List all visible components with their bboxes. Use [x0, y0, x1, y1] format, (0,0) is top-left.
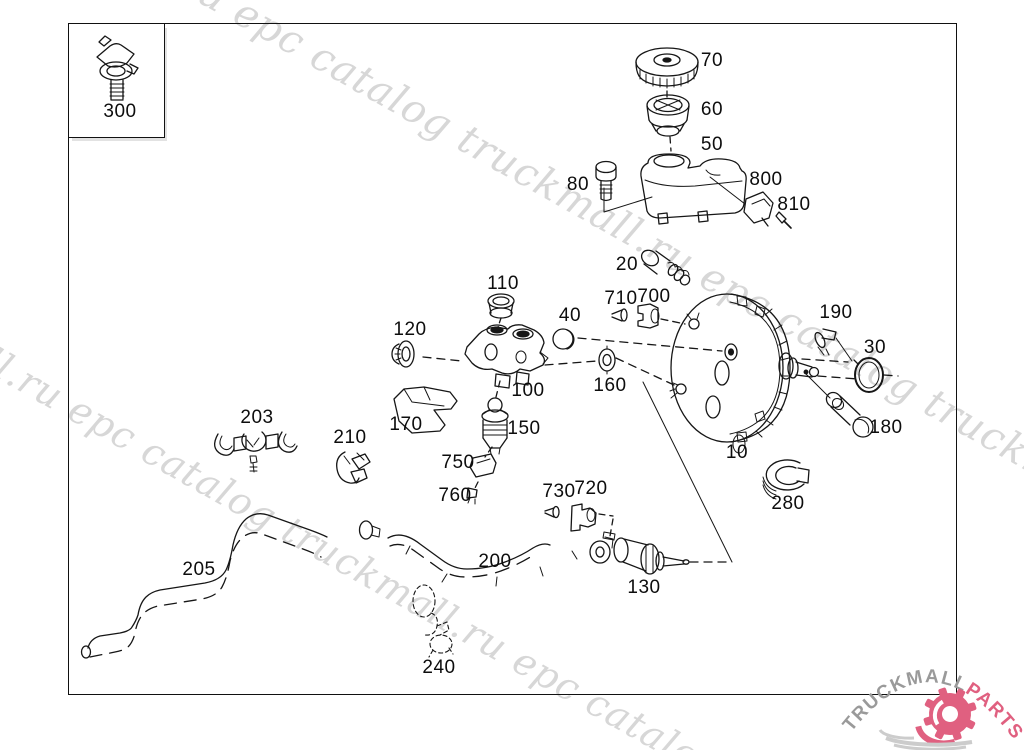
part-label-700: 700 [637, 286, 670, 308]
part-210-drawing [337, 452, 370, 483]
part-180-drawing [806, 374, 873, 437]
truckmall-parts-logo: TRUCKMALLPARTS [828, 642, 1024, 750]
part-120-drawing [392, 341, 414, 367]
part-label-40: 40 [559, 305, 581, 327]
part-label-120: 120 [393, 319, 426, 341]
part-150-drawing [482, 398, 508, 454]
part-label-300: 300 [103, 101, 136, 123]
part-205-drawing [82, 514, 381, 658]
part-label-100: 100 [511, 380, 544, 402]
part-label-810: 810 [777, 194, 810, 216]
part-20-drawing [639, 247, 692, 287]
part-130-drawing [614, 538, 689, 574]
part-label-110: 110 [487, 273, 519, 295]
part-110-drawing [488, 294, 514, 318]
part-60-drawing [647, 95, 689, 136]
part-50-drawing [641, 154, 746, 224]
part-label-710: 710 [604, 288, 637, 310]
hose-200-end-fitting [590, 532, 615, 563]
part-label-730: 730 [542, 481, 575, 503]
part-label-720: 720 [574, 478, 607, 500]
part-710-drawing [612, 309, 627, 321]
part-label-210: 210 [333, 427, 366, 449]
part-203-drawing [215, 432, 297, 472]
part-190-drawing [813, 329, 852, 361]
catalog-page: truckmall.ru epc catalog truckmall.ru ep… [0, 0, 1024, 750]
exploded-parts-drawing [0, 0, 1024, 750]
part-70-drawing [636, 48, 698, 88]
part-label-190: 190 [819, 302, 852, 324]
part-label-160: 160 [593, 375, 626, 397]
part-label-70: 70 [701, 50, 723, 72]
part-10-booster-drawing [670, 294, 819, 453]
part-30-drawing [854, 358, 883, 392]
part-label-280: 280 [771, 493, 804, 515]
part-label-240: 240 [422, 657, 455, 679]
part-720-drawing [571, 504, 596, 531]
part-label-60: 60 [701, 99, 723, 121]
part-300-drawing [97, 36, 138, 100]
part-label-800: 800 [749, 169, 782, 191]
part-label-170: 170 [389, 414, 422, 436]
part-label-30: 30 [864, 337, 886, 359]
part-label-750: 750 [441, 452, 474, 474]
part-label-150: 150 [507, 418, 540, 440]
part-100-drawing [465, 325, 548, 388]
part-label-10: 10 [726, 442, 748, 464]
part-label-50: 50 [701, 134, 723, 156]
part-label-20: 20 [616, 254, 638, 276]
part-40-drawing [553, 329, 574, 349]
part-240-drawing [413, 585, 453, 657]
logo-text-pink: PARTS [962, 679, 1024, 744]
part-label-80: 80 [567, 174, 589, 196]
part-label-180: 180 [869, 417, 902, 439]
part-80-drawing [596, 162, 616, 201]
part-label-760: 760 [438, 485, 471, 507]
part-160-drawing [599, 346, 615, 374]
part-label-203: 203 [240, 407, 273, 429]
part-label-130: 130 [627, 577, 660, 599]
part-730-drawing [545, 507, 559, 518]
part-800-drawing [744, 192, 773, 226]
part-label-200: 200 [478, 551, 511, 573]
part-label-205: 205 [182, 559, 215, 581]
